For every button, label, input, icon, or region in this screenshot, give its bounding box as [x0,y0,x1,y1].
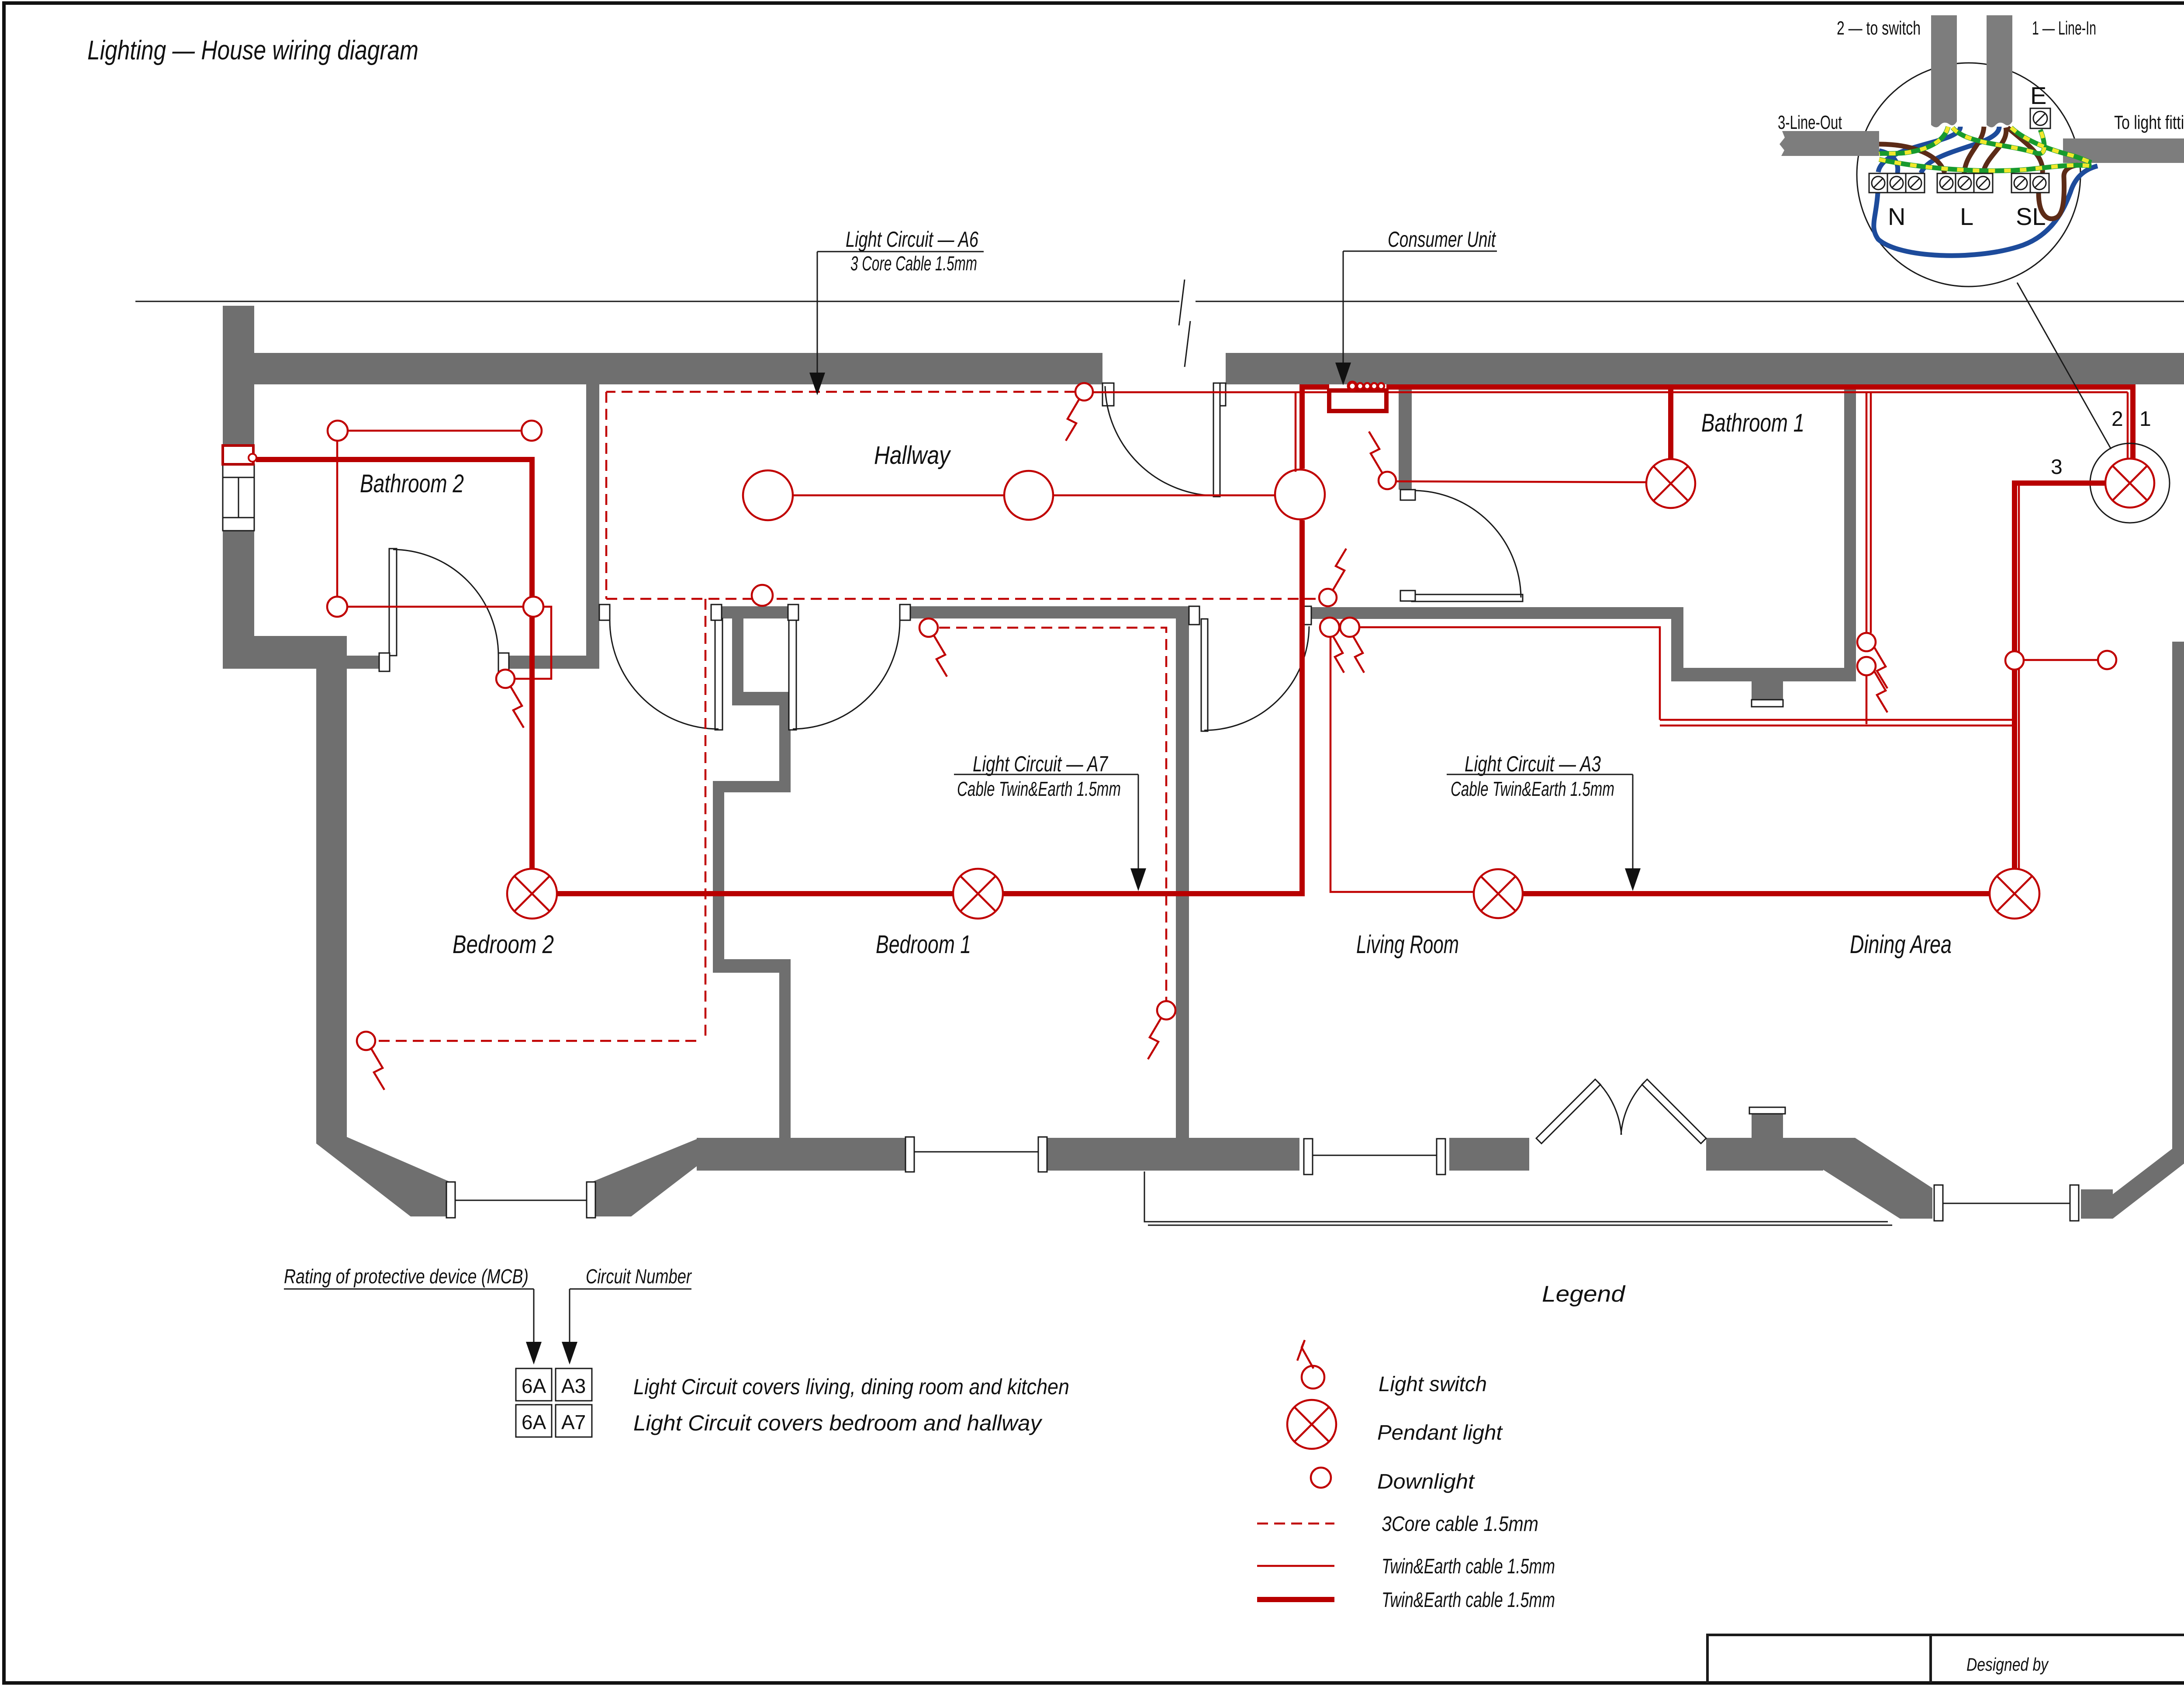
svg-text:3 Core Cable 1.5mm: 3 Core Cable 1.5mm [850,252,977,275]
svg-text:Light Circuit — A6: Light Circuit — A6 [846,227,978,252]
svg-text:E: E [2030,82,2046,109]
svg-text:N: N [1888,203,1905,230]
svg-text:Light switch: Light switch [1379,1373,1487,1396]
svg-text:A3: A3 [561,1375,586,1397]
svg-text:Living Room: Living Room [1356,930,1459,959]
svg-text:Rating of protective device (M: Rating of protective device (MCB) [284,1265,529,1288]
svg-text:Twin&Earth cable 1.5mm: Twin&Earth cable 1.5mm [1382,1555,1555,1578]
svg-text:1 — Line-In: 1 — Line-In [2032,17,2096,39]
svg-text:Light Circuit — A3: Light Circuit — A3 [1465,752,1601,776]
svg-text:Pendant light: Pendant light [1377,1421,1503,1444]
svg-text:Downlight: Downlight [1377,1470,1475,1493]
svg-text:2 — to switch: 2 — to switch [1837,17,1921,39]
svg-text:3-Line-Out: 3-Line-Out [1778,112,1842,133]
svg-text:3Core cable 1.5mm: 3Core cable 1.5mm [1382,1513,1538,1536]
svg-text:1: 1 [2139,408,2151,431]
svg-text:6A: 6A [522,1375,546,1397]
svg-text:A7: A7 [561,1411,586,1434]
svg-text:Circuit Number: Circuit Number [586,1265,692,1288]
svg-text:Lighting — House wiring diagra: Lighting — House wiring diagram [87,35,418,66]
svg-text:2: 2 [2111,408,2123,431]
svg-text:Bathroom 2: Bathroom 2 [360,470,464,498]
svg-text:Light Circuit covers living, d: Light Circuit covers living, dining room… [633,1375,1069,1399]
svg-text:Cable Twin&Earth 1.5mm: Cable Twin&Earth 1.5mm [1451,777,1614,800]
svg-text:Light Circuit — A7: Light Circuit — A7 [973,752,1109,776]
svg-text:6A: 6A [522,1411,546,1434]
svg-text:Bathroom 1: Bathroom 1 [1701,409,1804,437]
svg-text:Consumer Unit: Consumer Unit [1388,227,1496,252]
svg-text:Dining Area: Dining Area [1850,930,1952,959]
svg-text:L: L [1960,203,1973,230]
svg-text:Legend: Legend [1542,1282,1626,1307]
svg-text:Bedroom 1: Bedroom 1 [876,930,971,959]
svg-text:Bedroom 2: Bedroom 2 [453,930,554,959]
svg-text:To light fitting: To light fitting [2114,112,2184,133]
svg-text:3: 3 [2051,456,2063,479]
svg-text:Designed by: Designed by [1966,1654,2049,1675]
svg-text:Hallway: Hallway [874,441,951,470]
svg-text:Light Circuit covers bedroom a: Light Circuit covers bedroom and hallway [633,1411,1043,1435]
svg-text:Twin&Earth cable 1.5mm: Twin&Earth cable 1.5mm [1382,1589,1555,1612]
svg-text:Cable Twin&Earth 1.5mm: Cable Twin&Earth 1.5mm [957,777,1121,800]
svg-text:SL: SL [2016,203,2046,230]
